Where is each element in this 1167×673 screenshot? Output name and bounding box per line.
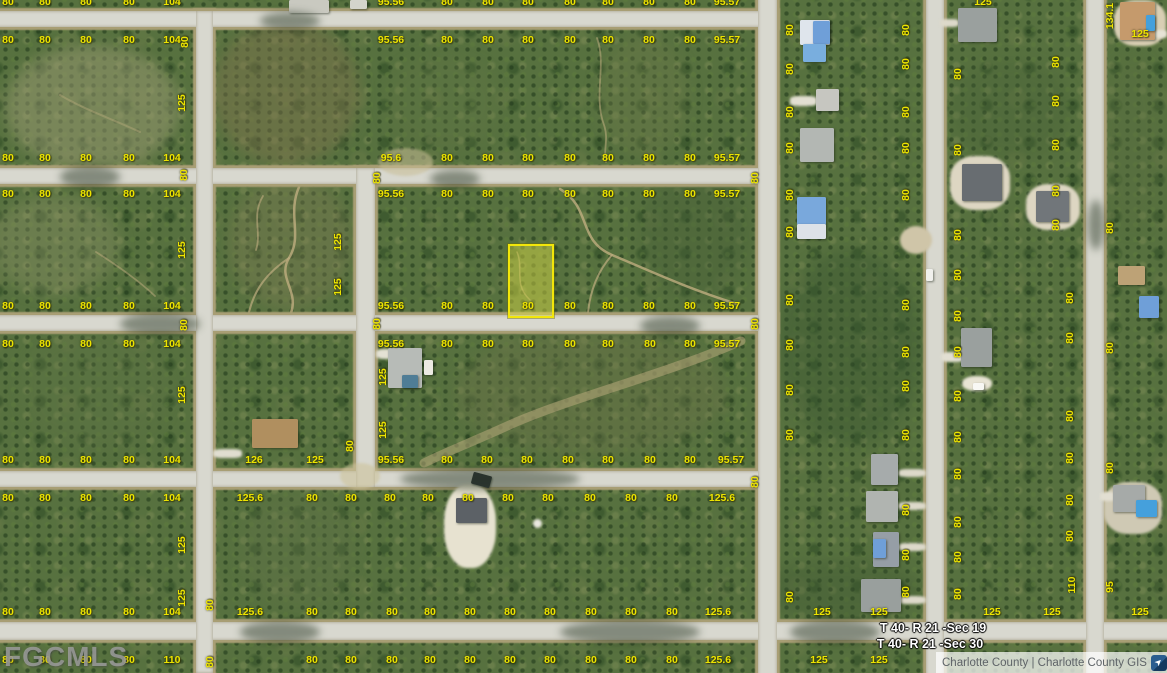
attribution-text: Charlotte County | Charlotte County GIS [942, 657, 1147, 669]
dimension-label: 125 [813, 606, 831, 618]
dirt-trail [60, 95, 140, 132]
dimension-label: 80 [123, 300, 135, 312]
dimension-label: 80 [644, 338, 656, 350]
pool-enclosure [402, 375, 418, 388]
dimension-label: 95.57 [714, 0, 740, 8]
dimension-label: 80 [1104, 462, 1116, 474]
dimension-label: 80 [345, 606, 357, 618]
tarp [803, 44, 826, 62]
dimension-label: 80 [522, 188, 534, 200]
dimension-label: 80 [542, 492, 554, 504]
dimension-label: 80 [482, 188, 494, 200]
dimension-label: 80 [482, 152, 494, 164]
dimension-label: 80 [952, 588, 964, 600]
dimension-label: 104 [163, 492, 181, 504]
dimension-label: 80 [1050, 219, 1062, 231]
dimension-label: 80 [952, 390, 964, 402]
dimension-label: 80 [952, 551, 964, 563]
dimension-label: 125 [176, 241, 188, 259]
dimension-label: 80 [900, 380, 912, 392]
dimension-label: 80 [784, 24, 796, 36]
dimension-label: 125 [377, 421, 389, 439]
dimension-label: 125.6 [705, 606, 731, 618]
dimension-label: 80 [39, 606, 51, 618]
dimension-label: 80 [39, 188, 51, 200]
dimension-label: 80 [1104, 222, 1116, 234]
dimension-label: 80 [481, 454, 493, 466]
dimension-label: 80 [80, 0, 92, 8]
dimension-label: 80 [384, 492, 396, 504]
dimension-label: 80 [482, 338, 494, 350]
dimension-label: 80 [2, 0, 14, 8]
driveway-or-clearing [213, 449, 242, 458]
dimension-label: 80 [900, 504, 912, 516]
dimension-label: 95.57 [714, 152, 740, 164]
house [797, 224, 826, 239]
dimension-label: 80 [684, 454, 696, 466]
dirt-trail [424, 341, 741, 463]
dimension-label: 80 [482, 34, 494, 46]
house [958, 8, 997, 42]
dimension-label: 95.56 [378, 34, 404, 46]
dimension-label: 80 [2, 338, 14, 350]
dimension-label: 80 [178, 319, 190, 331]
dimension-label: 80 [1064, 332, 1076, 344]
dimension-label: 95.57 [714, 188, 740, 200]
dimension-label: 80 [900, 142, 912, 154]
dimension-label: 80 [522, 152, 534, 164]
dimension-label: 80 [306, 654, 318, 666]
dimension-label: 125.6 [705, 654, 731, 666]
dimension-label: 80 [522, 300, 534, 312]
dimension-label: 80 [1104, 342, 1116, 354]
dimension-label: 80 [522, 0, 534, 8]
dimension-label: 80 [952, 468, 964, 480]
dimension-label: 80 [564, 152, 576, 164]
dimension-label: 80 [502, 492, 514, 504]
dimension-label: 104 [163, 606, 181, 618]
dimension-label: 80 [123, 152, 135, 164]
dimension-label: 80 [900, 299, 912, 311]
dimension-label: 125 [810, 654, 828, 666]
house-blue-roof [813, 21, 830, 44]
dimension-label: 80 [684, 338, 696, 350]
driveway-or-clearing [340, 463, 380, 489]
dimension-label: 80 [123, 492, 135, 504]
watermark: FGCMLS [4, 641, 128, 673]
dirt-trail [597, 38, 606, 162]
dimension-label: 80 [784, 189, 796, 201]
dimension-label: 80 [522, 338, 534, 350]
dimension-label: 80 [521, 454, 533, 466]
road [0, 471, 777, 487]
dimension-label: 80 [952, 269, 964, 281]
dimension-label: 80 [482, 300, 494, 312]
dimension-label: 80 [900, 189, 912, 201]
dimension-label: 80 [482, 0, 494, 8]
dimension-label: 80 [345, 492, 357, 504]
dimension-label: 80 [464, 606, 476, 618]
dimension-label: 80 [952, 346, 964, 358]
dimension-label: 80 [584, 492, 596, 504]
dimension-label: 80 [80, 454, 92, 466]
driveway-or-clearing [900, 226, 932, 254]
dirt-trail [560, 189, 737, 304]
dimension-label: 80 [602, 300, 614, 312]
dimension-label: 80 [544, 654, 556, 666]
dimension-label: 95.56 [378, 300, 404, 312]
dimension-label: 80 [1050, 95, 1062, 107]
dirt-trail [285, 187, 299, 313]
road [196, 11, 213, 673]
dimension-label: 80 [666, 654, 678, 666]
dimension-label: 80 [1064, 292, 1076, 304]
dimension-label: 80 [123, 34, 135, 46]
road [758, 0, 777, 673]
dimension-label: 80 [441, 338, 453, 350]
vehicle [973, 383, 984, 390]
dimension-label: 125 [306, 454, 324, 466]
tarp [873, 539, 886, 558]
dimension-label: 110 [164, 654, 181, 666]
house [800, 128, 834, 162]
dimension-label: 80 [344, 440, 356, 452]
dimension-label: 80 [784, 384, 796, 396]
dimension-label: 80 [80, 188, 92, 200]
dimension-label: 80 [643, 0, 655, 8]
dimension-label: 125 [1131, 28, 1149, 40]
dimension-label: 80 [784, 142, 796, 154]
dimension-label: 80 [784, 339, 796, 351]
dimension-label: 80 [2, 188, 14, 200]
dimension-label: 80 [204, 599, 216, 611]
dimension-label: 125 [974, 0, 992, 8]
dimension-label: 80 [564, 338, 576, 350]
dimension-label: 80 [123, 338, 135, 350]
dimension-label: 80 [386, 606, 398, 618]
tree-shadow [430, 170, 480, 188]
driveway-or-clearing [790, 96, 817, 106]
dimension-label: 80 [522, 34, 534, 46]
dimension-label: 80 [644, 454, 656, 466]
house [1118, 266, 1145, 285]
dimension-label: 125.6 [709, 492, 735, 504]
dimension-label: 80 [1050, 56, 1062, 68]
tree-shadow [60, 166, 120, 188]
driveway-or-clearing [1154, 30, 1167, 38]
dimension-label: 80 [462, 492, 474, 504]
dimension-label: 80 [666, 492, 678, 504]
driveway-or-clearing [898, 469, 926, 477]
vehicle [926, 269, 933, 281]
dimension-label: 125 [983, 606, 1001, 618]
dimension-label: 80 [80, 606, 92, 618]
dimension-label: 80 [441, 152, 453, 164]
dimension-label: 80 [900, 24, 912, 36]
dimension-label: 125 [1131, 606, 1149, 618]
house [289, 0, 329, 13]
dimension-label: 80 [564, 188, 576, 200]
dimension-label: 80 [424, 606, 436, 618]
house [350, 0, 367, 9]
dimension-label: 80 [2, 606, 14, 618]
dimension-label: 95 [1104, 581, 1116, 593]
dimension-label: 80 [179, 36, 191, 48]
barn [252, 419, 298, 448]
dimension-label: 95.6 [381, 152, 401, 164]
dimension-label: 80 [371, 172, 383, 184]
dimension-label: 80 [371, 318, 383, 330]
dimension-label: 95.56 [378, 0, 404, 8]
dimension-label: 80 [39, 338, 51, 350]
dimension-label: 80 [900, 58, 912, 70]
dimension-label: 80 [39, 492, 51, 504]
road [0, 11, 777, 27]
dimension-label: 80 [900, 549, 912, 561]
dimension-label: 80 [666, 606, 678, 618]
dimension-label: 80 [684, 188, 696, 200]
dimension-label: 104 [163, 300, 181, 312]
dimension-label: 80 [441, 0, 453, 8]
dimension-label: 80 [952, 229, 964, 241]
dimension-label: 80 [900, 586, 912, 598]
dimension-label: 80 [39, 300, 51, 312]
dimension-label: 80 [643, 34, 655, 46]
dimension-label: 80 [2, 34, 14, 46]
dimension-label: 80 [123, 188, 135, 200]
dimension-label: 80 [625, 654, 637, 666]
dimension-label: 125.6 [237, 606, 263, 618]
dimension-label: 95.56 [378, 338, 404, 350]
dimension-label: 80 [784, 429, 796, 441]
dimension-label: 80 [80, 492, 92, 504]
dimension-label: 80 [564, 0, 576, 8]
dimension-label: 80 [564, 300, 576, 312]
dimension-label: 95.57 [714, 34, 740, 46]
dimension-label: 80 [441, 34, 453, 46]
dimension-label: 125 [1043, 606, 1061, 618]
dimension-label: 125 [176, 589, 188, 607]
dimension-label: 80 [784, 226, 796, 238]
dimension-label: 80 [1064, 410, 1076, 422]
dimension-label: 80 [602, 152, 614, 164]
dimension-label: 80 [952, 431, 964, 443]
dimension-label: 80 [39, 454, 51, 466]
dimension-label: 95.57 [714, 300, 740, 312]
tree-shadow [560, 620, 700, 644]
dimension-label: 80 [684, 0, 696, 8]
dimension-label: 80 [564, 34, 576, 46]
dimension-label: 95.57 [714, 338, 740, 350]
dimension-label: 80 [80, 34, 92, 46]
dimension-label: 95.56 [378, 454, 404, 466]
dimension-label: 80 [562, 454, 574, 466]
dimension-label: 80 [80, 152, 92, 164]
dimension-label: 80 [585, 606, 597, 618]
dimension-label: 80 [749, 172, 761, 184]
house [866, 491, 898, 522]
dimension-label: 104 [163, 188, 181, 200]
dimension-label: 125 [870, 654, 888, 666]
dimension-label: 104 [163, 152, 181, 164]
vehicle [424, 360, 433, 375]
dimension-label: 80 [1050, 139, 1062, 151]
dimension-label: 80 [749, 318, 761, 330]
dirt-trail [96, 252, 155, 296]
dimension-label: 80 [80, 338, 92, 350]
dimension-label: 80 [306, 492, 318, 504]
dimension-label: 80 [602, 34, 614, 46]
dimension-label: 80 [952, 516, 964, 528]
dimension-label: 80 [39, 34, 51, 46]
tree-shadow [1088, 200, 1104, 250]
dimension-label: 80 [952, 310, 964, 322]
house-construction [962, 164, 1002, 201]
dimension-label: 80 [441, 300, 453, 312]
dimension-label: 125 [176, 536, 188, 554]
dimension-label: 80 [504, 654, 516, 666]
dimension-label: 80 [345, 654, 357, 666]
dimension-label: 80 [544, 606, 556, 618]
dimension-label: 80 [204, 656, 216, 668]
dimension-label: 80 [1064, 494, 1076, 506]
dirt-trail [256, 196, 263, 250]
dimension-label: 80 [39, 0, 51, 8]
dimension-label: 125.6 [237, 492, 263, 504]
pool [1136, 500, 1157, 517]
dimension-label: 80 [952, 68, 964, 80]
dimension-label: 80 [643, 188, 655, 200]
dimension-label: 110 [1066, 577, 1078, 594]
driveway-or-clearing [940, 19, 959, 27]
dimension-label: 80 [602, 454, 614, 466]
dimension-label: 80 [784, 106, 796, 118]
dimension-label: 80 [1064, 530, 1076, 542]
dimension-label: 80 [684, 300, 696, 312]
tree-shadow [400, 468, 580, 490]
road [926, 0, 944, 673]
dimension-label: 80 [123, 0, 135, 8]
dimension-label: 125 [332, 233, 344, 251]
house-blue-roof [1139, 296, 1159, 318]
aerial-parcel-map[interactable]: 8080808010495.568080808080808095.5712580… [0, 0, 1167, 673]
dimension-label: 80 [625, 492, 637, 504]
dimension-label: 80 [602, 188, 614, 200]
dimension-label: 80 [39, 152, 51, 164]
road [1086, 0, 1104, 673]
dimension-label: 80 [784, 294, 796, 306]
driveway-or-clearing [533, 519, 542, 528]
section-label-19: T 40- R 21 -Sec 19 [880, 621, 986, 635]
dimension-label: 80 [900, 106, 912, 118]
dimension-label: 80 [178, 169, 190, 181]
dimension-label: 125 [176, 94, 188, 112]
dimension-label: 104 [163, 0, 181, 8]
dimension-label: 80 [386, 654, 398, 666]
dimension-label: 80 [749, 476, 761, 488]
dimension-label: 80 [424, 654, 436, 666]
dirt-trail [249, 258, 289, 312]
gis-logo-icon[interactable]: ➤ [1151, 655, 1167, 671]
tree-shadow [240, 621, 320, 643]
dimension-label: 80 [464, 654, 476, 666]
dimension-label: 80 [684, 34, 696, 46]
dimension-label: 80 [643, 300, 655, 312]
dimension-label: 80 [900, 346, 912, 358]
dimension-label: 80 [602, 338, 614, 350]
shed [816, 89, 839, 111]
dimension-label: 80 [952, 144, 964, 156]
dimension-label: 80 [441, 188, 453, 200]
dimension-label: 80 [80, 300, 92, 312]
dimension-label: 126 [245, 454, 263, 466]
dimension-label: 80 [784, 591, 796, 603]
dimension-label: 80 [2, 492, 14, 504]
dimension-label: 134.1 [1104, 3, 1116, 29]
dimension-label: 95.57 [718, 454, 744, 466]
house [871, 454, 898, 485]
house-blue-tarp [797, 197, 826, 225]
dimension-label: 95.56 [378, 188, 404, 200]
dimension-label: 80 [602, 0, 614, 8]
house [961, 328, 992, 367]
dimension-label: 80 [441, 454, 453, 466]
tree-shadow [640, 316, 700, 336]
tree-shadow [260, 12, 320, 30]
section-label-30: T 40- R 21 -Sec 30 [877, 637, 983, 651]
dimension-label: 125 [377, 368, 389, 386]
dimension-label: 80 [2, 454, 14, 466]
dimension-label: 80 [1064, 452, 1076, 464]
dimension-label: 80 [2, 152, 14, 164]
dimension-label: 80 [123, 454, 135, 466]
dimension-label: 80 [2, 300, 14, 312]
dimension-label: 80 [585, 654, 597, 666]
dimension-label: 80 [684, 152, 696, 164]
dimension-label: 80 [900, 429, 912, 441]
dimension-label: 125 [176, 386, 188, 404]
dimension-label: 80 [422, 492, 434, 504]
dimension-label: 80 [643, 152, 655, 164]
dimension-label: 80 [123, 606, 135, 618]
tree-shadow [790, 620, 880, 644]
dimension-label: 80 [1050, 185, 1062, 197]
dimension-label: 104 [163, 454, 181, 466]
dimension-label: 80 [306, 606, 318, 618]
dimension-label: 80 [504, 606, 516, 618]
dimension-label: 104 [163, 338, 181, 350]
attribution-bar: Charlotte County | Charlotte County GIS … [936, 652, 1167, 673]
dimension-label: 80 [784, 63, 796, 75]
dimension-label: 125 [332, 278, 344, 296]
dimension-label: 125 [870, 606, 888, 618]
dimension-label: 80 [625, 606, 637, 618]
